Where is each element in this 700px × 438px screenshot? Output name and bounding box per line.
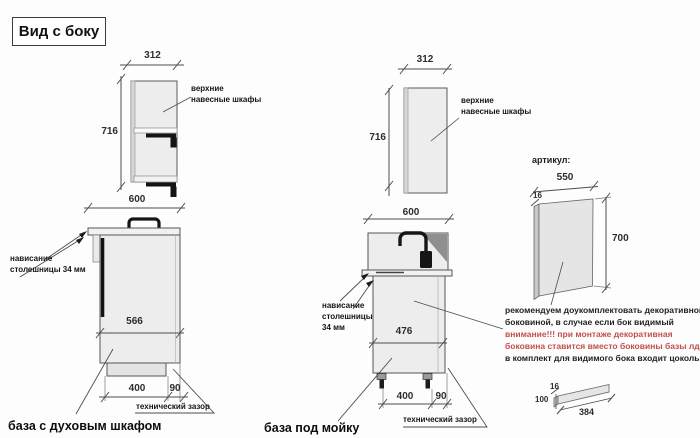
label-middle-overhang: нависание столешницы 34 мм [322, 301, 377, 333]
dim-plinth-length: 384 [579, 407, 594, 417]
note-block: рекомендуем доукомплектовать декоративно… [505, 304, 700, 364]
heading-article: артикул: [532, 155, 570, 165]
dim-middle-base-width: 600 [381, 207, 441, 218]
page-title-text: Вид с боку [19, 23, 100, 40]
dim-panel-thickness: 16 [533, 191, 542, 200]
dim-plinth-height: 100 [535, 395, 548, 404]
decorative-side-panel [530, 181, 611, 305]
note-line-4: боковина ставится вместо боковины базы л… [505, 340, 700, 352]
label-left-tech-gap: технический зазор [136, 402, 210, 411]
dim-left-base-width: 600 [107, 194, 167, 205]
dim-plinth-thickness: 16 [550, 382, 559, 391]
drawing-linework [0, 0, 700, 438]
page-title: Вид с боку [12, 17, 106, 46]
label-left-overhang-line1: нависание [10, 254, 90, 265]
label-left-overhang-line2: столешницы 34 мм [10, 265, 90, 276]
label-middle-overhang-line2: столешницы [322, 312, 377, 323]
dim-middle-tech-gap: 90 [430, 391, 452, 402]
label-left-wall-cabinets: верхние навесные шкафы [191, 84, 263, 106]
faucet-body [420, 251, 432, 268]
dim-panel-width: 550 [548, 172, 582, 183]
note-line-5: в комплект для видимого бока входит цоко… [505, 352, 700, 364]
note-line-2: боковиной, в случае если бок видимый [505, 316, 700, 328]
dim-middle-upper-width: 312 [398, 54, 452, 65]
label-middle-overhang-line1: нависание [322, 301, 377, 312]
label-middle-wall-cabinets: верхние навесные шкафы [461, 96, 533, 118]
dim-middle-plinth-width: 400 [387, 391, 423, 402]
left-upper-cabinet [117, 60, 191, 197]
label-middle-tech-gap: технический зазор [403, 415, 477, 424]
label-left-overhang: нависание столешницы 34 мм [10, 254, 90, 276]
dim-left-inner-depth: 566 [107, 316, 162, 327]
label-middle-overhang-line3: 34 мм [322, 323, 377, 334]
dim-left-upper-width: 312 [125, 50, 180, 61]
caption-sink-base: база под мойку [264, 421, 359, 435]
dim-middle-upper-height: 716 [360, 132, 386, 143]
adjustable-legs [377, 374, 432, 389]
note-line-3: внимание!!! при монтаже декоративная [505, 328, 700, 340]
side-view-drawing-page: Вид с боку 312 716 верхние навесные шкаф… [0, 0, 700, 438]
dim-left-plinth-width: 400 [118, 383, 156, 394]
middle-upper-cabinet [385, 64, 459, 196]
note-line-1: рекомендуем доукомплектовать декоративно… [505, 304, 700, 316]
dim-middle-inner-depth: 476 [384, 326, 424, 337]
dim-panel-height: 700 [612, 233, 629, 244]
dim-left-upper-height: 716 [92, 126, 118, 137]
dim-left-tech-gap: 90 [164, 383, 186, 394]
caption-oven-base: база с духовым шкафом [8, 419, 161, 433]
